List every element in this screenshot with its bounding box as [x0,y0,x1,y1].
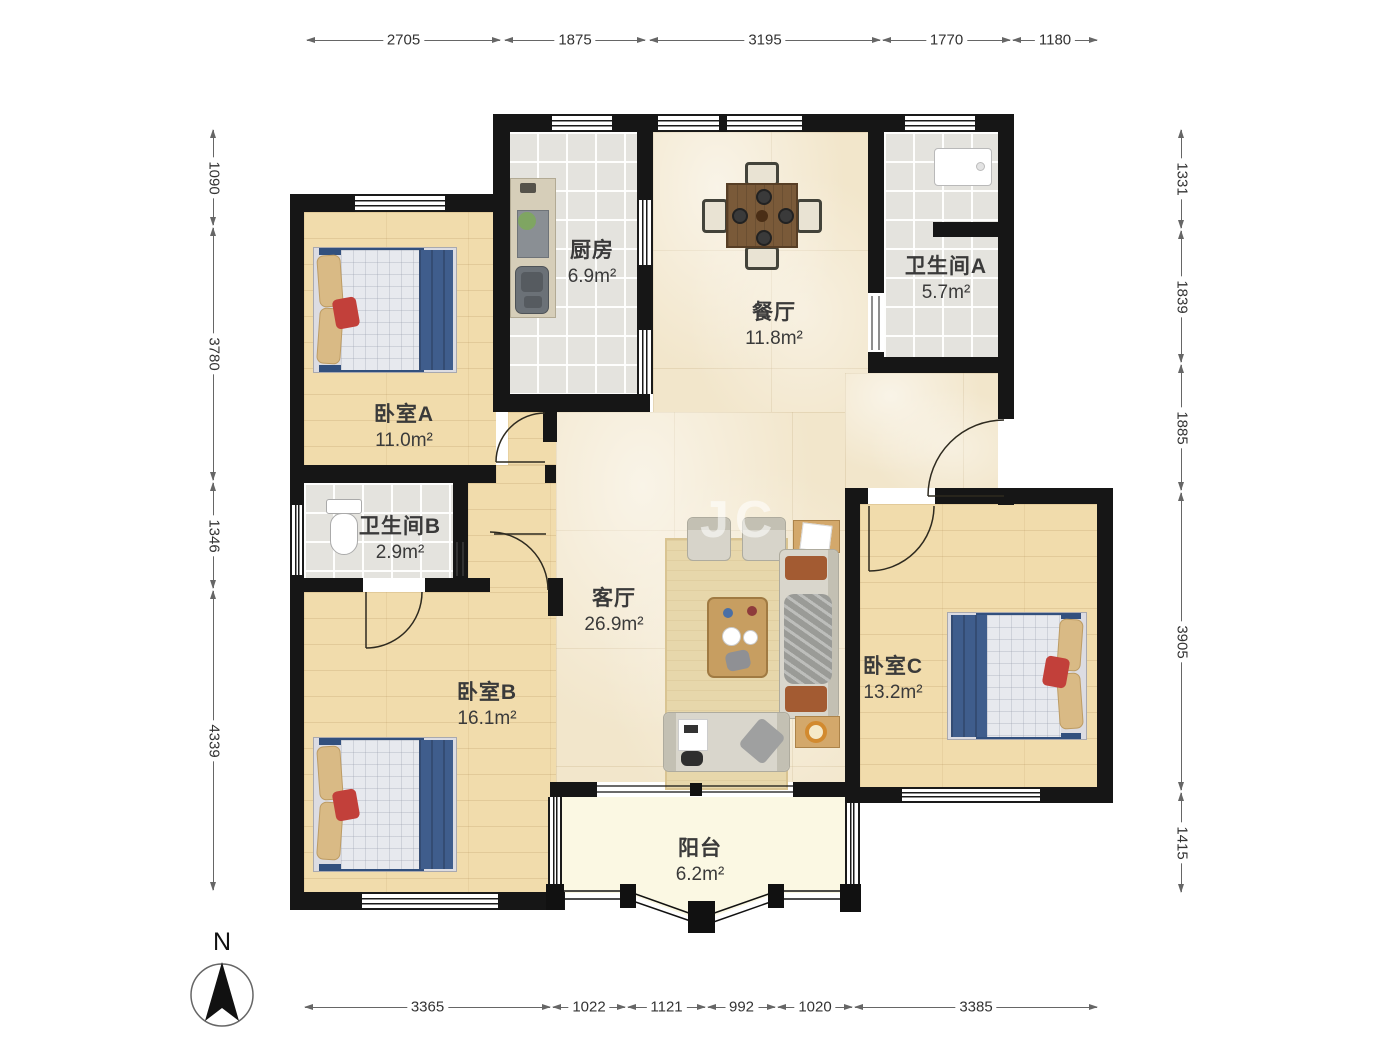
room-name: 卫生间B [359,510,441,540]
room-name: 厨房 [568,234,617,264]
room-name: 卧室A [374,398,434,428]
dimension-left-1: 1090 [213,130,214,225]
dimension-value: 4339 [205,720,222,761]
room-area: 13.2m² [863,682,923,704]
room-name: 卫生间A [905,250,987,280]
room-name: 客厅 [584,582,643,612]
dimension-value: 1331 [1173,158,1190,199]
dimension-value: 3195 [744,32,785,49]
room-label-bedroom-a: 卧室A 11.0m² [374,398,434,452]
balcony-door-divider [690,783,702,796]
room-label-kitchen: 厨房 6.9m² [568,234,617,288]
room-label-living: 客厅 26.9m² [584,582,643,636]
room-area: 16.1m² [457,708,517,730]
room-name: 卧室C [863,650,923,680]
dimension-top-5: 1180 [1013,40,1097,41]
dimension-left-2: 3780 [213,228,214,480]
room-area: 6.9m² [568,266,617,288]
balcony-rail-left [562,891,627,899]
compass-north-label: N [213,928,231,957]
room-label-bedroom-c: 卧室C 13.2m² [863,650,923,704]
dimension-value: 1022 [568,999,609,1016]
dimension-value: 1346 [205,515,222,556]
dimension-value: 3780 [205,333,222,374]
dimension-value: 992 [725,999,758,1016]
room-label-bath-b: 卫生间B 2.9m² [359,510,441,564]
dimension-value: 3905 [1173,621,1190,662]
room-label-dining: 餐厅 11.8m² [745,296,803,350]
bedroom-b-ensuite-door-arc [366,592,422,648]
floorplan-canvas: JC 厨房 6.9m² 餐厅 11.8m² 卫生间A 5.7m² 卧室A 11.… [0,0,1400,1050]
dimension-value: 1415 [1173,822,1190,863]
bath-a-door-lines [872,296,879,350]
dimension-bottom-4: 992 [708,1007,775,1008]
room-area: 6.2m² [676,864,725,886]
dimension-bottom-2: 1022 [553,1007,625,1008]
dimension-bottom-3: 1121 [628,1007,705,1008]
room-label-balcony: 阳台 6.2m² [676,832,725,886]
balcony-post [546,884,564,910]
room-label-bedroom-b: 卧室B 16.1m² [457,676,517,730]
dimension-bottom-5: 1020 [778,1007,852,1008]
room-area: 11.0m² [374,430,434,452]
dimension-top-3: 3195 [650,40,880,41]
room-area: 26.9m² [584,614,643,636]
room-area: 11.8m² [745,328,803,350]
dimension-top-1: 2705 [307,40,500,41]
room-name: 卧室B [457,676,517,706]
room-name: 餐厅 [745,296,803,326]
balcony-post [768,884,784,908]
hallway-door-arc [490,532,548,590]
dimension-value: 3365 [407,999,448,1016]
dimension-value: 1770 [926,32,967,49]
compass-needle [205,962,239,1021]
balcony-post [840,884,861,912]
dimension-value: 1020 [794,999,835,1016]
balcony-rail-right [777,891,845,899]
balcony-post-center [688,901,715,933]
dimension-top-4: 1770 [883,40,1010,41]
dimension-left-3: 1346 [213,483,214,588]
dimension-right-2: 1839 [1181,231,1182,362]
room-area: 2.9m² [359,542,441,564]
dimension-value: 1875 [554,32,595,49]
dimension-bottom-1: 3365 [305,1007,550,1008]
balcony-post [620,884,636,908]
bedroom-c-door-arc [869,506,934,571]
dimension-value: 3385 [955,999,996,1016]
room-area: 5.7m² [905,282,987,304]
dimension-value: 1180 [1035,32,1075,49]
bath-b-door-lines [457,542,463,576]
dimension-value: 1121 [646,999,686,1016]
dimension-value: 2705 [383,32,424,49]
dimension-right-4: 3905 [1181,493,1182,790]
entry-door-arc [928,420,1004,496]
dimension-left-4: 4339 [213,591,214,890]
room-label-bath-a: 卫生间A 5.7m² [905,250,987,304]
dimension-right-3: 1885 [1181,365,1182,490]
dimension-bottom-6: 3385 [855,1007,1097,1008]
bedroom-a-door-arc [496,413,545,462]
dimension-top-2: 1875 [505,40,645,41]
dimension-value: 1839 [1173,276,1190,317]
room-name: 阳台 [676,832,725,862]
dimension-value: 1090 [205,157,222,198]
dimension-right-5: 1415 [1181,793,1182,892]
dimension-value: 1885 [1173,407,1190,448]
dimension-right-1: 1331 [1181,130,1182,228]
